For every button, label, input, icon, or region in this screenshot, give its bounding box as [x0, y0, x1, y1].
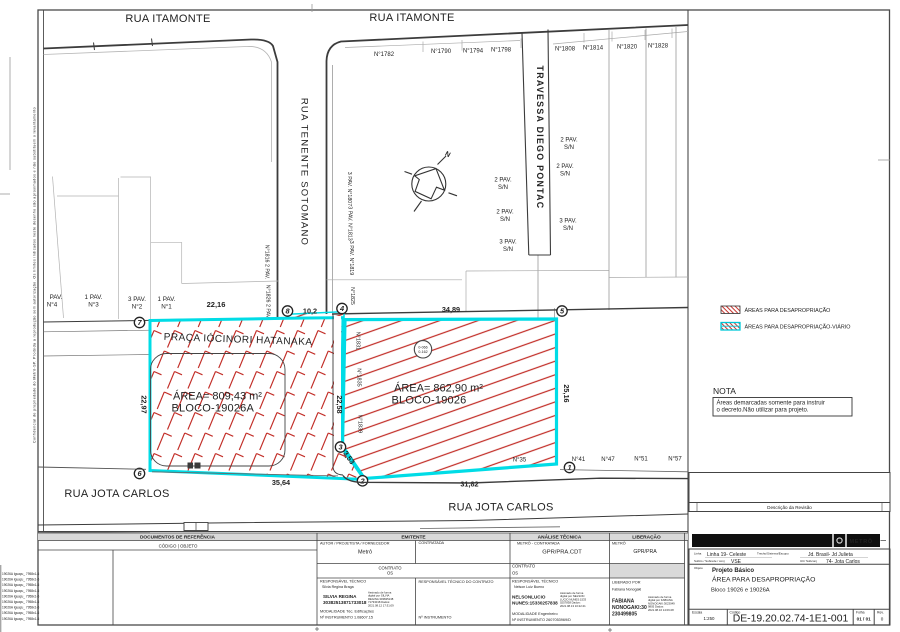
svg-text:RESPONSÁVEL TÉCNICO: RESPONSÁVEL TÉCNICO [512, 579, 558, 584]
svg-text:OS: OS [387, 571, 393, 576]
svg-text:74- Jota Carlos: 74- Jota Carlos [826, 559, 860, 565]
svg-text:1 PAV.: 1 PAV. [84, 294, 102, 301]
svg-text:2 PAV.: 2 PAV. [496, 210, 514, 216]
svg-text:35,64: 35,64 [272, 478, 291, 487]
svg-text:NUNES:15330257838: NUNES:15330257838 [512, 601, 558, 606]
svg-text:RESPONSÁVEL TÉCNICO: RESPONSÁVEL TÉCNICO [320, 579, 366, 584]
svg-text:10,2: 10,2 [303, 307, 317, 316]
svg-text:3 PAV.: 3 PAV. [559, 219, 577, 225]
svg-text:19026A Iguaçu_ 7958x1-6: 19026A Iguaçu_ 7958x1-6 [2, 572, 39, 576]
svg-text:Confidencial de propriedade do: Confidencial de propriedade do Metrô-SP.… [33, 107, 37, 443]
svg-text:METRÔ - CONTRATADA: METRÔ - CONTRATADA [517, 541, 560, 546]
svg-text:3 PAV. N°1813: 3 PAV. N°1813 [347, 206, 353, 240]
svg-text:Nº INSTRUMENTO 2607053969/D: Nº INSTRUMENTO 2607053969/D [512, 618, 571, 622]
svg-text:19026A Iguaçu_ 7958x1-6: 19026A Iguaçu_ 7958x1-6 [2, 589, 39, 593]
svg-text:N°1826 2 PAV.: N°1826 2 PAV. [265, 285, 271, 319]
svg-text:3 PAV. N°1819: 3 PAV. N°1819 [348, 241, 354, 275]
svg-text:BLOCO-19026A: BLOCO-19026A [172, 403, 255, 415]
svg-text:N°51: N°51 [634, 457, 648, 463]
svg-text:19026A Iguaçu_ 7958x1-6: 19026A Iguaçu_ 7958x1-6 [2, 594, 39, 598]
svg-text:22,97: 22,97 [140, 395, 149, 413]
svg-text:CONTRATO: CONTRATO [512, 564, 536, 569]
svg-text:LIBERAÇÃO: LIBERAÇÃO [632, 534, 661, 541]
svg-text:RUA JOTA CARLOS: RUA JOTA CARLOS [448, 502, 553, 514]
svg-text:DE-19.20.02.74-1E1-001: DE-19.20.02.74-1E1-001 [733, 613, 849, 624]
svg-text:CÓDIGO | OBJETO: CÓDIGO | OBJETO [159, 544, 198, 549]
svg-text:0-162: 0-162 [418, 350, 427, 354]
svg-text:Silvia Regina Braga: Silvia Regina Braga [322, 585, 354, 589]
svg-text:19026A Iguaçu_ 7958x1-6: 19026A Iguaçu_ 7958x1-6 [2, 600, 39, 604]
svg-text:ÁREA PARA DESAPROPRIAÇÃO: ÁREA PARA DESAPROPRIAÇÃO [712, 575, 815, 584]
svg-text:RUA TENENTE SOTOMANO: RUA TENENTE SOTOMANO [299, 98, 310, 246]
svg-text:30382513871733018: 30382513871733018 [323, 600, 367, 605]
svg-text:2021.08.16 14:06:28: 2021.08.16 14:06:28 [648, 608, 674, 612]
svg-text:Nelson Luiz Bueno: Nelson Luiz Bueno [514, 585, 544, 589]
svg-text:MODALIDADE Engenheiro: MODALIDADE Engenheiro [512, 612, 558, 616]
svg-text:Subtrs / Subrede / conj: Subtrs / Subrede / conj [694, 559, 725, 563]
svg-text:N°1816 2 PAV.: N°1816 2 PAV. [264, 245, 270, 279]
svg-text:19026A Iguaçu_ 7958x1-6: 19026A Iguaçu_ 7958x1-6 [2, 578, 39, 582]
svg-text:N°57: N°57 [668, 456, 682, 462]
svg-text:NELSONLUCIO: NELSONLUCIO [512, 595, 546, 600]
svg-text:N°1828: N°1828 [648, 44, 669, 50]
svg-text:N°41: N°41 [572, 457, 586, 463]
svg-text:SILVIA REGINA: SILVIA REGINA [323, 594, 357, 599]
svg-text:BLOCO-19026: BLOCO-19026 [392, 395, 467, 407]
svg-text:OS: OS [512, 571, 518, 576]
svg-text:EMITENTE: EMITENTE [401, 535, 426, 541]
svg-text:RUA ITAMONTE: RUA ITAMONTE [369, 12, 454, 24]
svg-text:N°47: N°47 [601, 457, 615, 463]
svg-text:2 PAV.: 2 PAV. [556, 164, 574, 170]
svg-text:4: 4 [339, 304, 344, 313]
svg-text:1 PAV.: 1 PAV. [157, 296, 175, 303]
svg-text:FABIANA: FABIANA [612, 599, 635, 605]
svg-text:N°4: N°4 [47, 301, 58, 309]
svg-text:CONTRATADA: CONTRATADA [419, 541, 445, 545]
svg-text:RUA JOTA CARLOS: RUA JOTA CARLOS [64, 488, 169, 500]
svg-text:RUA ITAMONTE: RUA ITAMONTE [125, 13, 210, 25]
svg-text:ÁREAS PARA DESAPROPRIAÇÃO: ÁREAS PARA DESAPROPRIAÇÃO [745, 307, 831, 314]
svg-text:N°1814: N°1814 [583, 46, 604, 52]
svg-text:34,89: 34,89 [442, 305, 460, 314]
svg-text:N°1820: N°1820 [617, 45, 638, 51]
svg-text:3 PAV.: 3 PAV. [128, 296, 146, 303]
svg-text:N°1835: N°1835 [356, 368, 362, 386]
svg-text:22,58: 22,58 [335, 395, 344, 413]
svg-text:N°3: N°3 [88, 301, 99, 309]
svg-text:S/N: S/N [498, 185, 508, 191]
svg-text:N°2: N°2 [132, 303, 143, 311]
svg-text:S/N: S/N [564, 145, 574, 151]
svg-text:3 PAV.: 3 PAV. [499, 240, 517, 246]
svg-text:N°1794: N°1794 [463, 49, 484, 55]
svg-text:PAV.: PAV. [50, 294, 63, 301]
svg-text:25,16: 25,16 [562, 384, 571, 402]
svg-text:N°1825: N°1825 [349, 287, 355, 305]
svg-text:Áreas demarcadas somente para: Áreas demarcadas somente para instruir [717, 400, 825, 407]
svg-text:METRÔ: METRÔ [612, 541, 626, 546]
svg-text:1: 1 [567, 463, 571, 472]
svg-text:Escala: Escala [692, 611, 702, 615]
svg-text:2: 2 [359, 477, 365, 486]
svg-text:Trecho/Sistema/Escopo: Trecho/Sistema/Escopo [757, 552, 789, 556]
svg-text:UC/ Subconj: UC/ Subconj [800, 559, 817, 563]
svg-text:Bloco 19026 e 19026A: Bloco 19026 e 19026A [711, 588, 770, 594]
svg-text:N°1808: N°1808 [555, 47, 576, 53]
svg-text:S/N: S/N [500, 217, 510, 223]
svg-text:Rev.: Rev. [877, 611, 884, 615]
svg-text:0: 0 [881, 617, 884, 622]
svg-text:N°1782: N°1782 [374, 52, 395, 58]
svg-text:GPR/PRA: GPR/PRA [633, 549, 657, 555]
svg-text:22,16: 22,16 [207, 300, 226, 309]
svg-text:NOTA: NOTA [713, 386, 736, 396]
svg-text:VSE: VSE [731, 559, 742, 565]
svg-text:NONOGAKI:30: NONOGAKI:30 [612, 605, 647, 611]
svg-text:Descrição da Revisão: Descrição da Revisão [767, 505, 812, 510]
svg-text:N°1831: N°1831 [355, 332, 361, 350]
svg-text:N°1798: N°1798 [491, 48, 512, 54]
svg-text:Folha: Folha [856, 611, 865, 615]
svg-text:2021.08.12 17:31:09: 2021.08.12 17:31:09 [368, 603, 394, 607]
svg-text:N°1: N°1 [161, 303, 172, 311]
svg-text:o decreto.Não utilizar para pr: o decreto.Não utilizar para projeto. [717, 408, 809, 414]
svg-text:GPR/PRA.CDT: GPR/PRA.CDT [542, 550, 582, 556]
svg-text:Linha: Linha [694, 552, 702, 556]
svg-text:TRAVESSA DIEGO PONTAC: TRAVESSA DIEGO PONTAC [535, 66, 545, 210]
svg-text:ÁREAS PARA DESAPROPRIAÇÃO-VIÁR: ÁREAS PARA DESAPROPRIAÇÃO-VIÁRIO [745, 324, 851, 331]
svg-text:RESPONSÁVEL TÉCNICO DO CONTRAT: RESPONSÁVEL TÉCNICO DO CONTRATO [419, 579, 494, 584]
svg-text:LIBERADO POR: LIBERADO POR [612, 581, 641, 585]
svg-text:MODALIDADE Téc. Edificações: MODALIDADE Téc. Edificações [320, 609, 374, 613]
svg-text:19026A Iguaçu_ 7958x1-6: 19026A Iguaçu_ 7958x1-6 [2, 617, 39, 621]
svg-text:Fabiana Nonogaki: Fabiana Nonogaki [612, 588, 641, 592]
svg-text:0-066: 0-066 [418, 345, 427, 349]
svg-text:METRÔ: METRÔ [850, 537, 873, 545]
svg-text:2021.08.13 10:22:41: 2021.08.13 10:22:41 [560, 604, 586, 608]
svg-text:AUTOR / PROJETISTA / FORNECEDO: AUTOR / PROJETISTA / FORNECEDOR [320, 542, 390, 546]
svg-text:S/N: S/N [560, 172, 570, 178]
svg-text:2 PAV.: 2 PAV. [560, 138, 578, 144]
svg-text:ÁREA= 809,43 m²: ÁREA= 809,43 m² [173, 390, 262, 403]
svg-text:230499805: 230499805 [612, 612, 637, 618]
svg-text:3 PAV. N°1807: 3 PAV. N°1807 [346, 172, 352, 206]
svg-text:S/N: S/N [563, 226, 573, 232]
svg-text:2 PAV.: 2 PAV. [494, 178, 512, 184]
svg-text:19026A Iguaçu_ 7958x1-6: 19026A Iguaçu_ 7958x1-6 [2, 583, 39, 587]
svg-text:19026A Iguaçu_ 7958x1-6: 19026A Iguaçu_ 7958x1-6 [2, 606, 39, 610]
svg-text:ÁREA= 862,90 m²: ÁREA= 862,90 m² [394, 382, 483, 395]
svg-text:S/N: S/N [503, 247, 513, 253]
svg-text:Projeto Básico: Projeto Básico [712, 568, 754, 574]
svg-text:Nº INSTRUMENTO 1.08607.15: Nº INSTRUMENTO 1.08607.15 [320, 616, 373, 620]
svg-text:1:250: 1:250 [704, 616, 716, 621]
svg-text:N°1839: N°1839 [357, 415, 363, 433]
svg-text:N°35: N°35 [513, 458, 527, 464]
svg-text:N°1790: N°1790 [431, 49, 452, 55]
svg-text:Metrô: Metrô [358, 550, 372, 556]
svg-text:Nº INSTRUMENTO: Nº INSTRUMENTO [419, 616, 452, 620]
svg-text:19026A Iguaçu_ 7958x1-6: 19026A Iguaçu_ 7958x1-6 [2, 611, 39, 615]
svg-text:31,82: 31,82 [460, 480, 478, 489]
svg-text:01 / 01: 01 / 01 [857, 617, 871, 622]
svg-text:Objeto: Objeto [694, 566, 703, 570]
